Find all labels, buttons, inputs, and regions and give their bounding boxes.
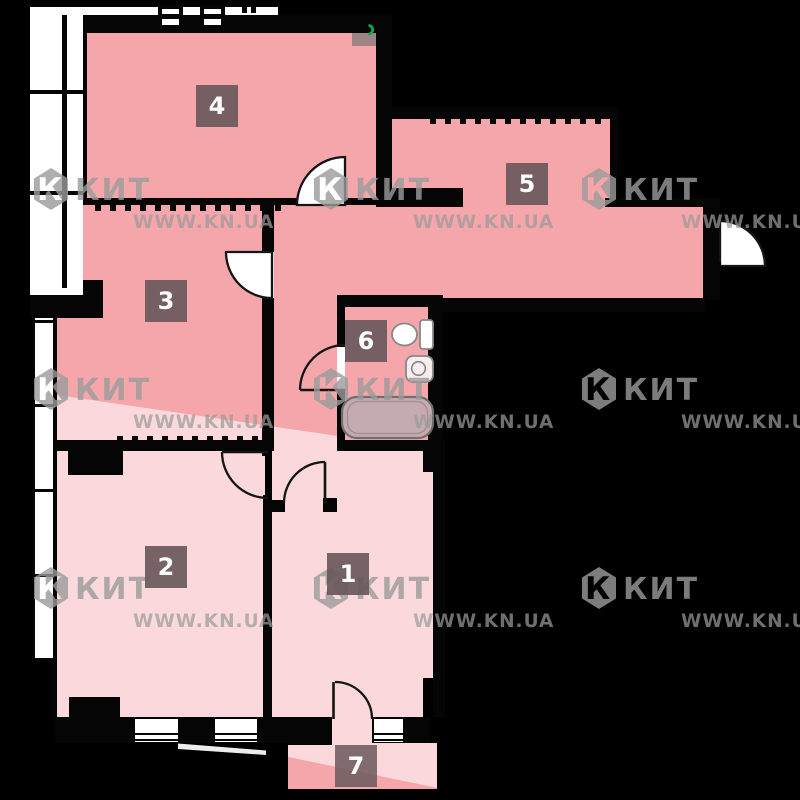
plan-overlay: К КИТWWW	[0, 0, 800, 800]
room-label-4: 4	[196, 85, 238, 127]
site-url-text: WWW.KN.UA	[413, 611, 554, 632]
door-balcony-arc	[335, 682, 372, 719]
room-label-5: 5	[506, 163, 548, 205]
site-url-text: WWW.KN.UA	[413, 212, 554, 233]
room-label-1: 1	[327, 553, 369, 595]
floor-plan: К КИТWWW	[0, 0, 800, 800]
brand-text: КИТ	[623, 572, 699, 607]
site-url-text: WWW.KN.UA	[681, 412, 800, 433]
room-label-6: 6	[345, 320, 387, 362]
room-label-7: 7	[335, 745, 377, 787]
green-mark-icon	[368, 26, 372, 35]
site-url-text: WWW.KN.UA	[133, 412, 274, 433]
brand-text: КИТ	[75, 572, 151, 607]
room-label-2: 2	[145, 546, 187, 588]
brand-logo-icon	[34, 168, 68, 210]
brand-text: КИТ	[355, 373, 431, 408]
brand-logo-icon	[34, 567, 68, 609]
door-entrance-stub	[707, 262, 721, 270]
watermark: КИТWWW.KN.UA	[34, 368, 274, 433]
brand-logo-icon	[314, 368, 348, 410]
site-url-text: WWW.KN.UA	[133, 212, 274, 233]
toilet-tank	[420, 320, 433, 349]
room-label-3: 3	[145, 280, 187, 322]
site-url-text: WWW.KN.UA	[133, 611, 274, 632]
brand-logo-icon	[582, 368, 616, 410]
brand-logo-icon	[582, 168, 616, 210]
brand-text: КИТ	[623, 373, 699, 408]
door-room3	[226, 252, 272, 298]
watermark: КИТWWW.KN.UA	[34, 168, 274, 233]
brand-logo-icon	[582, 567, 616, 609]
brand-text: КИТ	[75, 373, 151, 408]
site-url-text: WWW.KN.UA	[413, 412, 554, 433]
bottom-wedge	[178, 744, 266, 756]
brand-text: КИТ	[623, 173, 699, 208]
brand-text: КИТ	[355, 173, 431, 208]
site-url-text: WWW.KN.UA	[681, 611, 800, 632]
door-room2-arc	[222, 452, 268, 498]
brand-text: КИТ	[75, 173, 151, 208]
watermark: КИТWWW.KN.UA	[582, 567, 800, 632]
door-room1-arc	[284, 462, 325, 503]
watermark: КИТWWW.KN.UA	[582, 368, 800, 433]
toilet-icon	[392, 324, 417, 346]
site-url-text: WWW.KN.UA	[681, 212, 800, 233]
watermark: КИТWWW.KN.UA	[582, 168, 800, 233]
brand-logo-icon	[34, 368, 68, 410]
